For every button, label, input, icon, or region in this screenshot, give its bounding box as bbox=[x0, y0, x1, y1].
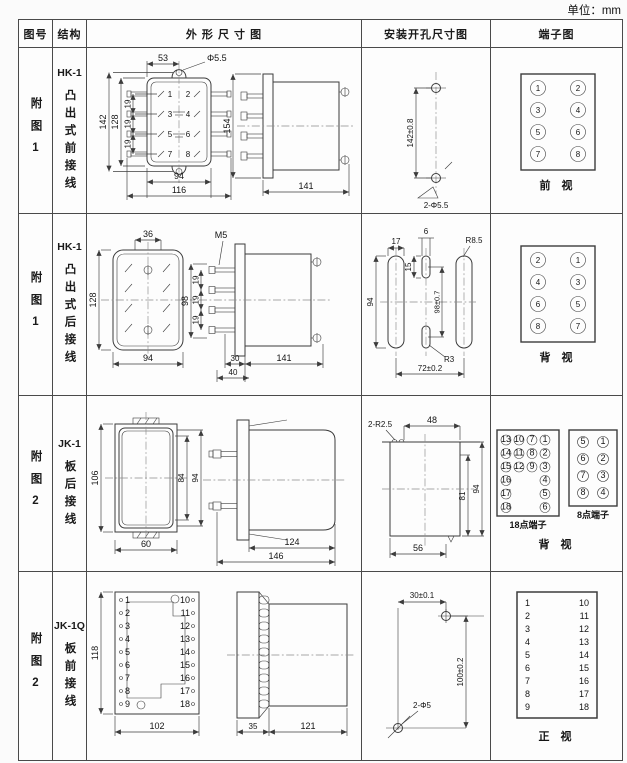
n15: 15 bbox=[579, 663, 589, 673]
dim-100tol: 100±0.2 bbox=[456, 657, 465, 686]
p2: 2 bbox=[542, 448, 547, 458]
e4: 4 bbox=[600, 487, 605, 497]
holes-label: 2-Φ5 bbox=[413, 701, 431, 710]
row4-outline-drawing: 1 2 3 4 5 6 7 8 9 10 11 12 13 14 15 16 1… bbox=[87, 572, 362, 760]
dim-19b: 19 bbox=[124, 119, 133, 128]
term-3: 3 bbox=[536, 106, 541, 115]
n6: 6 bbox=[525, 663, 530, 673]
fp12: 12 bbox=[180, 621, 190, 631]
term-5: 5 bbox=[576, 300, 581, 309]
n4: 4 bbox=[525, 637, 530, 647]
row2-figure: 附图1 bbox=[28, 271, 44, 339]
t1: 1 bbox=[168, 90, 173, 99]
fp2: 2 bbox=[125, 608, 130, 618]
header-terminal: 端子图 bbox=[491, 20, 622, 48]
p14: 14 bbox=[501, 448, 511, 458]
dim-154: 154 bbox=[222, 118, 232, 133]
n1: 1 bbox=[525, 598, 530, 608]
dim-94: 94 bbox=[191, 473, 200, 482]
dim-19b: 19 bbox=[192, 295, 201, 304]
dim-128: 128 bbox=[110, 114, 120, 129]
row3-mounting-cell: 48 2-R2.5 81 94 56 bbox=[362, 396, 491, 572]
p16: 16 bbox=[501, 475, 511, 485]
row3-terminal-cell: 13 10 7 1 14 11 8 2 15 12 9 3 16 4 17 5 … bbox=[491, 396, 622, 572]
dim-142: 142 bbox=[98, 114, 108, 129]
dim-98tol: 98±0.7 bbox=[433, 291, 442, 314]
row1-mounting-cell: 142±0.8 2-Φ5.5 bbox=[362, 48, 491, 214]
label-2r25: 2-R2.5 bbox=[368, 420, 393, 429]
n17: 17 bbox=[579, 689, 589, 699]
dim-118: 118 bbox=[90, 646, 100, 660]
row4-terminal-drawing: 1 2 3 4 5 6 7 8 9 10 11 12 13 14 15 16 1… bbox=[491, 572, 622, 760]
dim-19c: 19 bbox=[124, 139, 133, 148]
n5: 5 bbox=[525, 650, 530, 660]
p9: 9 bbox=[529, 461, 534, 471]
header-outline: 外 形 尺 寸 图 bbox=[87, 20, 362, 48]
dim-128: 128 bbox=[88, 292, 98, 307]
row3-outline-cell: 106 84 94 60 124 146 bbox=[87, 396, 362, 572]
dim-98: 98 bbox=[180, 296, 190, 306]
dim-60: 60 bbox=[141, 539, 151, 549]
term-7: 7 bbox=[536, 150, 541, 159]
label-8pt: 8点端子 bbox=[577, 509, 609, 520]
n2: 2 bbox=[525, 611, 530, 621]
row2-mounting-cell: 17 6 15 94 98±0.7 R8.5 R3 72±0.2 bbox=[362, 214, 491, 396]
label-m5: M5 bbox=[215, 230, 228, 240]
p15: 15 bbox=[501, 461, 511, 471]
dim-17: 17 bbox=[392, 237, 401, 246]
row4-terminal-cell: 1 2 3 4 5 6 7 8 9 10 11 12 13 14 15 16 1… bbox=[491, 572, 622, 760]
row2-mounting-drawing: 17 6 15 94 98±0.7 R8.5 R3 72±0.2 bbox=[362, 214, 491, 396]
p18: 18 bbox=[501, 502, 511, 512]
fp4: 4 bbox=[125, 634, 130, 644]
p13: 13 bbox=[501, 434, 511, 444]
row2-outline-cell: 36 128 94 M5 98 bbox=[87, 214, 362, 396]
row1-terminal-drawing: 1 2 3 4 5 6 7 8 前 视 bbox=[491, 48, 622, 214]
dim-141: 141 bbox=[298, 181, 313, 191]
e1: 1 bbox=[600, 436, 605, 446]
n9: 9 bbox=[525, 702, 530, 712]
view-caption: 前 视 bbox=[539, 178, 576, 192]
row2-structure-cell: HK-1 凸出式后接线 bbox=[53, 214, 87, 396]
header-mounting: 安装开孔尺寸图 bbox=[362, 20, 491, 48]
dim-30tol: 30±0.1 bbox=[410, 591, 435, 600]
dim-94: 94 bbox=[143, 353, 153, 363]
row1-outline-cell: 1 2 3 4 5 6 7 8 53 Φ5.5 142 128 19 bbox=[87, 48, 362, 214]
t8: 8 bbox=[186, 150, 191, 159]
term-2: 2 bbox=[536, 256, 541, 265]
row3-model: JK-1 bbox=[58, 438, 81, 450]
fp9: 9 bbox=[125, 699, 130, 709]
dim-84: 84 bbox=[177, 473, 186, 482]
n7: 7 bbox=[525, 676, 530, 686]
row1-figure: 附图1 bbox=[28, 97, 44, 165]
label-r85: R8.5 bbox=[466, 236, 483, 245]
fp10: 10 bbox=[180, 595, 190, 605]
dim-141: 141 bbox=[276, 353, 291, 363]
t2: 2 bbox=[186, 90, 191, 99]
n11: 11 bbox=[580, 611, 589, 621]
n14: 14 bbox=[579, 650, 589, 660]
dim-48: 48 bbox=[427, 415, 437, 425]
p8: 8 bbox=[529, 448, 534, 458]
dim-116: 116 bbox=[172, 185, 186, 195]
fp13: 13 bbox=[180, 634, 190, 644]
p7: 7 bbox=[529, 434, 534, 444]
n3: 3 bbox=[525, 624, 530, 634]
view-caption: 背 视 bbox=[539, 350, 576, 364]
term-4: 4 bbox=[576, 106, 581, 115]
row1-structure-cell: HK-1 凸出式前接线 bbox=[53, 48, 87, 214]
row4-figure-cell: 附图2 bbox=[19, 572, 53, 760]
header-structure: 结构 bbox=[53, 20, 87, 48]
fp18: 18 bbox=[180, 699, 190, 709]
p11: 11 bbox=[514, 448, 523, 458]
dim-94: 94 bbox=[472, 484, 481, 493]
row3-terminal-drawing: 13 10 7 1 14 11 8 2 15 12 9 3 16 4 17 5 … bbox=[491, 396, 622, 572]
fp7: 7 bbox=[125, 673, 130, 683]
row2-figure-cell: 附图1 bbox=[19, 214, 53, 396]
row4-figure: 附图2 bbox=[28, 632, 44, 700]
row1-desc: 凸出式前接线 bbox=[62, 89, 78, 194]
row2-terminal-drawing: 2 1 4 3 6 5 8 7 背 视 bbox=[491, 214, 622, 396]
p1: 1 bbox=[542, 434, 547, 444]
dim-35: 35 bbox=[249, 722, 258, 731]
fp17: 17 bbox=[180, 686, 190, 696]
fp11: 11 bbox=[181, 608, 190, 618]
e8: 8 bbox=[580, 487, 585, 497]
row3-figure: 附图2 bbox=[28, 450, 44, 518]
row2-desc: 凸出式后接线 bbox=[62, 263, 78, 368]
term-6: 6 bbox=[576, 128, 581, 137]
t7: 7 bbox=[168, 150, 173, 159]
row2-outline-drawing: 36 128 94 M5 98 bbox=[87, 214, 362, 396]
holes-label: 2-Φ5.5 bbox=[424, 201, 449, 210]
term-6: 6 bbox=[536, 300, 541, 309]
dim-94: 94 bbox=[366, 297, 375, 306]
term-1: 1 bbox=[576, 256, 581, 265]
dim-146: 146 bbox=[268, 551, 283, 561]
term-2: 2 bbox=[576, 84, 581, 93]
row1-model: HK-1 bbox=[57, 67, 82, 79]
row4-mounting-drawing: 30±0.1 100±0.2 2-Φ5 bbox=[362, 572, 491, 760]
fp6: 6 bbox=[125, 660, 130, 670]
dim-124: 124 bbox=[284, 537, 299, 547]
p12: 12 bbox=[514, 461, 524, 471]
row3-figure-cell: 附图2 bbox=[19, 396, 53, 572]
n13: 13 bbox=[579, 637, 589, 647]
n18: 18 bbox=[579, 702, 589, 712]
term-5: 5 bbox=[536, 128, 541, 137]
row4-model: JK-1Q bbox=[54, 620, 85, 632]
row1-terminal-cell: 1 2 3 4 5 6 7 8 前 视 bbox=[491, 48, 622, 214]
term-8: 8 bbox=[576, 150, 581, 159]
row3-desc: 板后接线 bbox=[62, 460, 78, 530]
row3-outline-drawing: 106 84 94 60 124 146 bbox=[87, 396, 362, 572]
t6: 6 bbox=[186, 130, 191, 139]
dim-142tol: 142±0.8 bbox=[406, 118, 415, 147]
dim-121: 121 bbox=[300, 721, 315, 731]
dim-19a: 19 bbox=[192, 275, 201, 284]
p4: 4 bbox=[542, 475, 547, 485]
spec-table: 图号 结构 外 形 尺 寸 图 安装开孔尺寸图 端子图 附图1 HK-1 凸出式… bbox=[18, 19, 623, 761]
fp14: 14 bbox=[180, 647, 190, 657]
term-7: 7 bbox=[576, 322, 581, 331]
row3-mounting-drawing: 48 2-R2.5 81 94 56 bbox=[362, 396, 491, 572]
term-4: 4 bbox=[536, 278, 541, 287]
dim-6: 6 bbox=[424, 227, 429, 236]
fp1: 1 bbox=[125, 595, 130, 605]
row1-figure-cell: 附图1 bbox=[19, 48, 53, 214]
fp8: 8 bbox=[125, 686, 130, 696]
view-caption: 正 视 bbox=[538, 729, 575, 743]
dim-102: 102 bbox=[149, 721, 164, 731]
e2: 2 bbox=[600, 453, 605, 463]
fp15: 15 bbox=[180, 660, 190, 670]
dim-hole: Φ5.5 bbox=[207, 53, 227, 63]
fp5: 5 bbox=[125, 647, 130, 657]
n8: 8 bbox=[525, 689, 530, 699]
e3: 3 bbox=[600, 470, 605, 480]
label-18pt: 18点端子 bbox=[509, 519, 546, 530]
fp16: 16 bbox=[180, 673, 190, 683]
p10: 10 bbox=[514, 434, 524, 444]
n10: 10 bbox=[579, 598, 589, 608]
p5: 5 bbox=[542, 488, 547, 498]
view-caption: 背 视 bbox=[538, 537, 575, 551]
t3: 3 bbox=[168, 110, 173, 119]
row1-outline-drawing: 1 2 3 4 5 6 7 8 53 Φ5.5 142 128 19 bbox=[87, 48, 362, 214]
dim-36: 36 bbox=[143, 229, 153, 239]
p3: 3 bbox=[542, 461, 547, 471]
e6: 6 bbox=[580, 453, 585, 463]
dim-106: 106 bbox=[90, 470, 100, 485]
dim-81: 81 bbox=[458, 491, 467, 500]
e7: 7 bbox=[580, 470, 585, 480]
header-figure: 图号 bbox=[19, 20, 53, 48]
dim-94: 94 bbox=[174, 171, 184, 181]
row1-mounting-drawing: 142±0.8 2-Φ5.5 bbox=[362, 48, 491, 214]
term-1: 1 bbox=[536, 84, 541, 93]
dim-40: 40 bbox=[229, 368, 238, 377]
e5: 5 bbox=[580, 436, 585, 446]
row2-terminal-cell: 2 1 4 3 6 5 8 7 背 视 bbox=[491, 214, 622, 396]
dim-56: 56 bbox=[413, 543, 423, 553]
t4: 4 bbox=[186, 110, 191, 119]
dim-30: 30 bbox=[231, 354, 240, 363]
row4-desc: 板前接线 bbox=[62, 642, 78, 712]
row4-outline-cell: 1 2 3 4 5 6 7 8 9 10 11 12 13 14 15 16 1… bbox=[87, 572, 362, 760]
row4-mounting-cell: 30±0.1 100±0.2 2-Φ5 bbox=[362, 572, 491, 760]
term-8: 8 bbox=[536, 322, 541, 331]
unit-note: 单位：mm bbox=[18, 2, 621, 18]
p17: 17 bbox=[501, 488, 511, 498]
n12: 12 bbox=[579, 624, 589, 634]
dim-53: 53 bbox=[158, 53, 168, 63]
p6: 6 bbox=[542, 502, 547, 512]
dim-19a: 19 bbox=[124, 99, 133, 108]
dim-15: 15 bbox=[404, 262, 413, 271]
row2-model: HK-1 bbox=[57, 241, 82, 253]
t5: 5 bbox=[168, 130, 173, 139]
dim-72: 72±0.2 bbox=[418, 364, 443, 373]
dim-19c: 19 bbox=[192, 315, 201, 324]
row3-structure-cell: JK-1 板后接线 bbox=[53, 396, 87, 572]
row4-structure-cell: JK-1Q 板前接线 bbox=[53, 572, 87, 760]
fp3: 3 bbox=[125, 621, 130, 631]
term-3: 3 bbox=[576, 278, 581, 287]
label-r3: R3 bbox=[444, 355, 455, 364]
n16: 16 bbox=[579, 676, 589, 686]
